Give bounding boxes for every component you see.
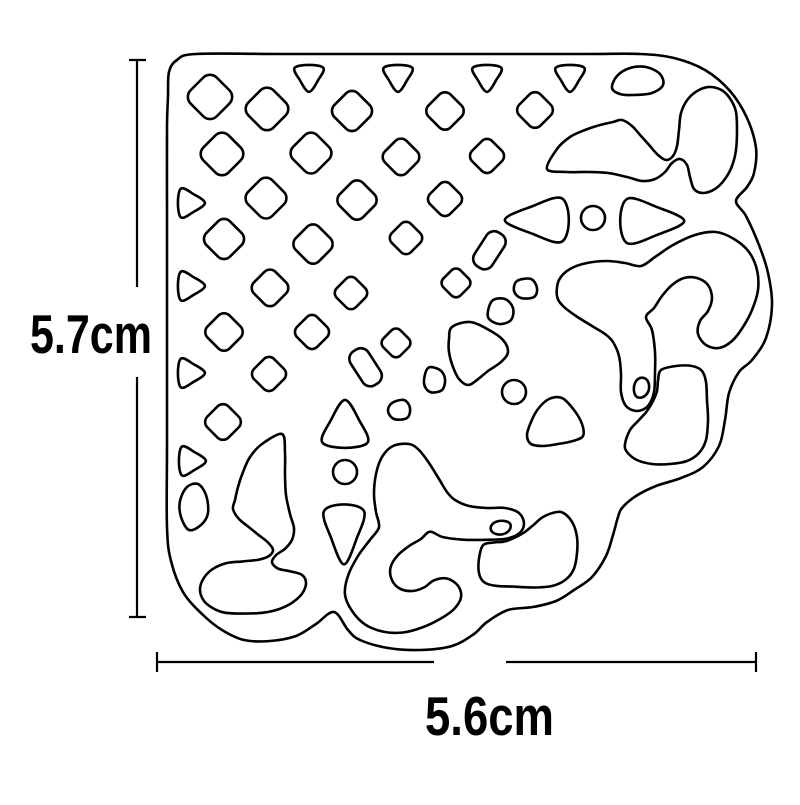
svg-text:5.7cm: 5.7cm [30, 303, 152, 365]
svg-text:5.6cm: 5.6cm [425, 685, 554, 747]
